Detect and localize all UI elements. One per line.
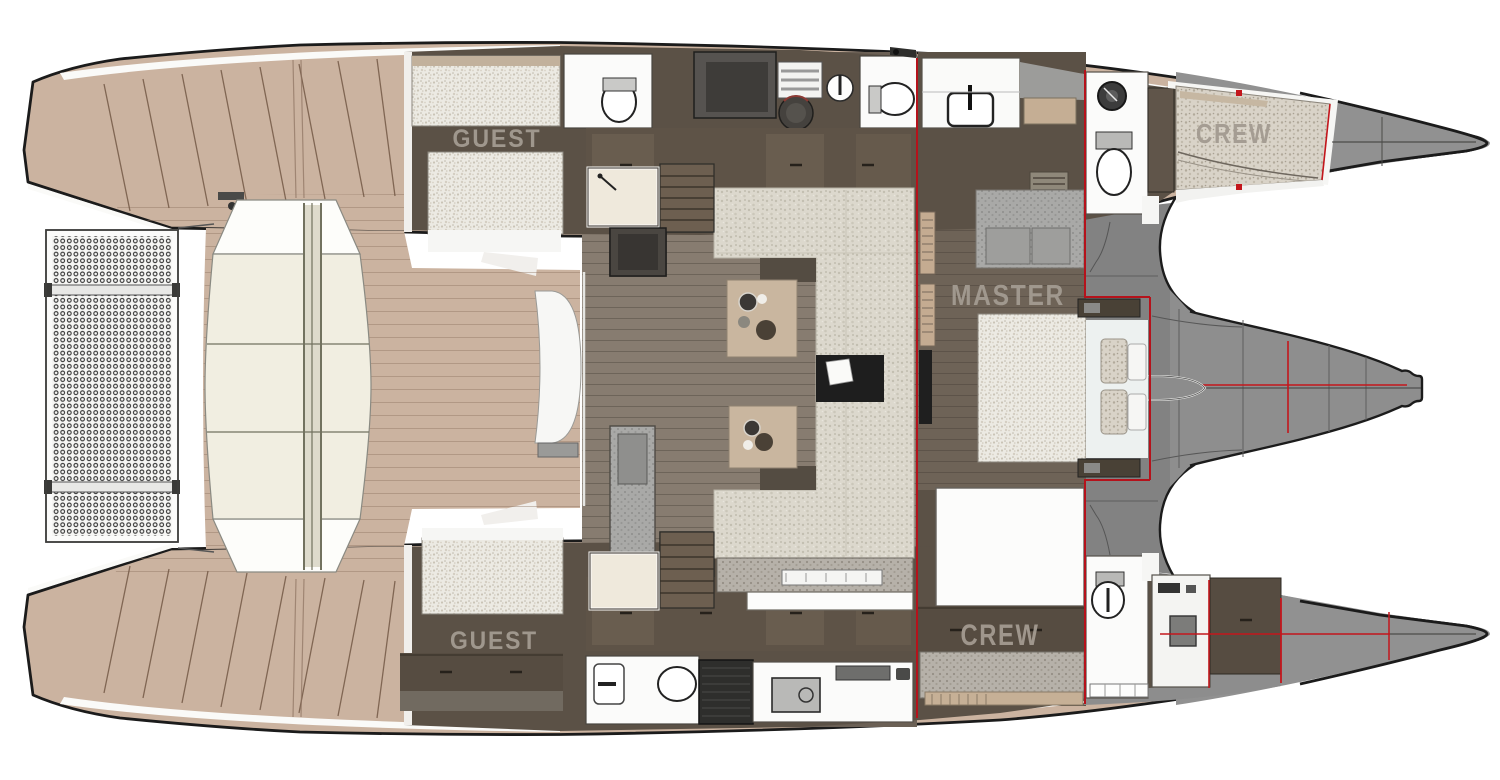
svg-text:GUEST: GUEST (453, 125, 542, 153)
svg-text:CREW: CREW (961, 619, 1040, 652)
svg-text:CREW: CREW (1196, 118, 1272, 149)
svg-text:MASTER: MASTER (951, 280, 1065, 312)
svg-text:GUEST: GUEST (450, 627, 538, 655)
